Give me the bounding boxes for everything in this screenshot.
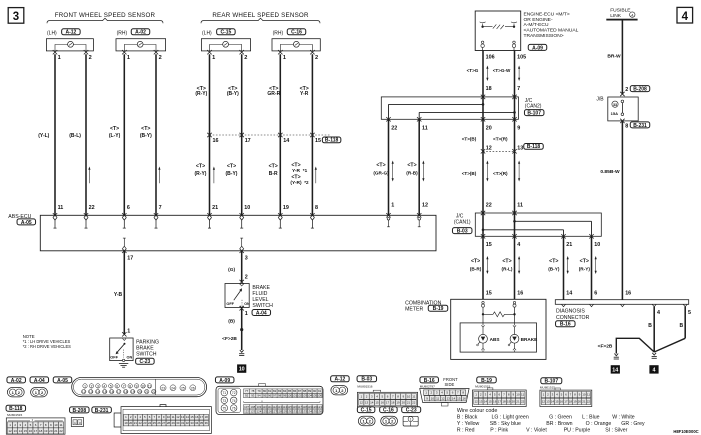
svg-text:21: 21 (145, 390, 149, 394)
svg-text:73: 73 (223, 399, 227, 403)
svg-text:21: 21 (134, 421, 138, 425)
svg-text:106: 106 (317, 394, 322, 398)
svg-text:Y-R: Y-R (292, 168, 301, 174)
svg-text:C-16: C-16 (383, 407, 394, 413)
svg-text:B-107: B-107 (544, 379, 558, 385)
svg-text:*2: *2 (304, 180, 309, 185)
svg-text:MU801515: MU801515 (540, 385, 555, 389)
svg-text:(R-B): (R-B) (406, 171, 418, 176)
svg-text:C-16: C-16 (291, 30, 302, 36)
svg-text:83: 83 (278, 389, 282, 393)
svg-text:SI : Silver: SI : Silver (605, 427, 627, 433)
svg-text:22: 22 (89, 205, 95, 211)
svg-text:<T>(B): <T>(B) (462, 136, 477, 141)
svg-text:A-09: A-09 (219, 378, 230, 384)
svg-text:(L-Y): (L-Y) (109, 133, 121, 139)
svg-text:(Y-R): (Y-R) (290, 180, 302, 186)
svg-text:12: 12 (176, 415, 180, 419)
svg-text:5: 5 (110, 384, 112, 388)
svg-text:107: 107 (244, 405, 249, 409)
svg-text:17: 17 (498, 399, 502, 403)
svg-text:6: 6 (116, 384, 118, 388)
svg-text:<T>: <T> (502, 258, 511, 264)
svg-text:<T>(B): <T>(B) (462, 171, 477, 176)
svg-text:BR-W: BR-W (607, 53, 621, 59)
svg-text:20: 20 (402, 401, 406, 405)
svg-text:BR : Brown: BR : Brown (546, 421, 572, 427)
svg-text:18: 18 (502, 399, 506, 403)
svg-text:15: 15 (315, 138, 321, 144)
svg-text:2: 2 (245, 275, 248, 281)
svg-text:77: 77 (245, 389, 249, 393)
svg-text:<T>: <T> (407, 163, 416, 169)
svg-text:29: 29 (172, 421, 176, 425)
svg-text:<T>(R): <T>(R) (493, 171, 508, 176)
svg-text:MU801515: MU801515 (7, 413, 22, 417)
svg-text:82: 82 (273, 389, 277, 393)
svg-text:8: 8 (315, 205, 318, 211)
svg-text:(B-Y): (B-Y) (227, 91, 239, 97)
svg-text:16: 16 (195, 415, 199, 419)
svg-text:4: 4 (682, 11, 689, 23)
svg-text:17: 17 (117, 390, 121, 394)
svg-text:12: 12 (486, 145, 492, 151)
svg-text:B-19: B-19 (433, 306, 444, 312)
svg-text:108: 108 (250, 405, 255, 409)
svg-text:GR-R: GR-R (267, 91, 280, 97)
svg-text:25: 25 (181, 386, 185, 390)
svg-text:Y-R: Y-R (300, 91, 309, 97)
svg-text:2: 2 (89, 55, 92, 61)
svg-text:17: 17 (564, 400, 568, 404)
svg-text:2: 2 (159, 55, 162, 61)
svg-text:22: 22 (59, 429, 63, 433)
svg-text:13: 13 (479, 399, 483, 403)
svg-text:23: 23 (143, 421, 147, 425)
svg-text:<T>: <T> (269, 164, 278, 170)
svg-text:B: B (679, 323, 683, 329)
svg-text:SIDE: SIDE (445, 382, 455, 387)
svg-text:11: 11 (172, 415, 175, 419)
svg-text:14: 14 (370, 401, 374, 405)
svg-text:99: 99 (283, 394, 287, 398)
svg-text:C-23: C-23 (139, 359, 150, 365)
svg-text:B-208: B-208 (633, 86, 647, 92)
svg-text:G : Green: G : Green (549, 415, 572, 421)
svg-text:9: 9 (517, 125, 520, 131)
svg-text:10: 10 (244, 205, 250, 211)
svg-text:1: 1 (84, 384, 86, 388)
svg-text:15: 15 (555, 400, 559, 404)
svg-text:91: 91 (318, 389, 322, 393)
svg-text:15: 15 (24, 429, 28, 433)
svg-text:19: 19 (507, 399, 511, 403)
svg-text:20: 20 (138, 390, 142, 394)
svg-text:33: 33 (190, 421, 194, 425)
svg-text:1: 1 (127, 55, 130, 61)
svg-text:(CAN1): (CAN1) (454, 219, 471, 225)
svg-text:LG : Light green: LG : Light green (492, 415, 529, 421)
svg-text:20: 20 (512, 399, 516, 403)
svg-text:13: 13 (365, 401, 369, 405)
svg-text:<T>: <T> (471, 258, 480, 264)
svg-text:93: 93 (251, 394, 255, 398)
svg-text:FUSIBLE: FUSIBLE (610, 7, 631, 13)
svg-text:22: 22 (521, 399, 525, 403)
svg-text:18: 18 (205, 415, 209, 419)
svg-text:(CAN2): (CAN2) (525, 104, 542, 110)
svg-text:B-R: B-R (269, 171, 278, 177)
svg-text:<T>: <T> (227, 164, 236, 170)
svg-text:C-23: C-23 (406, 407, 417, 413)
svg-text:76: 76 (232, 407, 236, 411)
svg-text:(R-Y): (R-Y) (195, 171, 207, 177)
svg-text:98: 98 (278, 394, 282, 398)
svg-text:16: 16 (381, 401, 385, 405)
svg-text:4: 4 (517, 242, 520, 248)
svg-text:OFF: OFF (226, 302, 234, 306)
svg-text:10: 10 (407, 394, 411, 398)
svg-text:J/B: J/B (596, 96, 604, 102)
svg-text:A-12: A-12 (334, 377, 345, 383)
svg-text:15: 15 (486, 291, 492, 297)
svg-text:12: 12 (360, 401, 364, 405)
svg-text:10: 10 (582, 393, 586, 397)
svg-text:3: 3 (97, 384, 99, 388)
svg-text:12: 12 (82, 390, 86, 394)
svg-text:21: 21 (582, 400, 586, 404)
svg-text:12: 12 (8, 429, 12, 433)
svg-text:1: 1 (283, 55, 286, 61)
svg-text:REAR WHEEL SPEED SENSOR: REAR WHEEL SPEED SENSOR (212, 12, 309, 19)
svg-text:<T>: <T> (141, 126, 150, 132)
svg-text:16: 16 (110, 390, 114, 394)
svg-text:A-02: A-02 (11, 378, 22, 384)
svg-text:14: 14 (96, 390, 100, 394)
svg-text:20: 20 (578, 400, 582, 404)
svg-text:5: 5 (688, 310, 691, 316)
svg-text:12: 12 (474, 399, 478, 403)
svg-text:13: 13 (13, 429, 17, 433)
svg-text:FRONT WHEEL SPEED SENSOR: FRONT WHEEL SPEED SENSOR (55, 12, 156, 19)
svg-text:109: 109 (257, 405, 262, 409)
svg-text:18: 18 (124, 390, 128, 394)
svg-text:MU802797: MU802797 (420, 384, 435, 388)
svg-text:17: 17 (245, 138, 251, 144)
svg-text:16: 16 (213, 138, 219, 144)
svg-text:H8F10E000C: H8F10E000C (673, 429, 698, 434)
svg-text:16: 16 (462, 396, 466, 400)
svg-text:(R-Y): (R-Y) (579, 267, 591, 272)
svg-text:1: 1 (212, 55, 215, 61)
svg-text:(RH): (RH) (273, 31, 284, 37)
svg-text:B-107: B-107 (527, 110, 541, 116)
svg-text:O : Orange: O : Orange (586, 421, 612, 427)
svg-text:16: 16 (493, 399, 497, 403)
svg-text:20: 20 (486, 125, 492, 131)
svg-text:B-231: B-231 (633, 123, 647, 129)
svg-text:15: 15 (488, 399, 492, 403)
svg-text:26: 26 (191, 386, 195, 390)
svg-text:124: 124 (257, 409, 262, 413)
svg-text:B-118: B-118 (9, 406, 23, 412)
svg-text:1: 1 (245, 311, 248, 317)
svg-text:13: 13 (517, 145, 523, 151)
svg-text:14: 14 (283, 138, 289, 144)
svg-text:22: 22 (587, 400, 591, 404)
svg-text:21: 21 (566, 242, 572, 248)
svg-text:L : Blue: L : Blue (582, 415, 600, 421)
svg-text:80: 80 (263, 389, 267, 393)
svg-text:11: 11 (58, 205, 64, 211)
svg-text:19: 19 (283, 205, 289, 211)
svg-text:(R-L): (R-L) (502, 267, 513, 272)
svg-text:10: 10 (141, 384, 145, 388)
svg-text:21: 21 (516, 399, 520, 403)
svg-text:(B-Y): (B-Y) (226, 171, 238, 177)
svg-text:<T>: <T> (549, 258, 558, 264)
svg-text:81: 81 (268, 389, 272, 393)
svg-text:18: 18 (486, 86, 492, 92)
svg-text:B-03: B-03 (457, 228, 468, 234)
svg-text:22: 22 (412, 401, 416, 405)
svg-text:19: 19 (124, 421, 128, 425)
svg-text:92: 92 (245, 394, 249, 398)
svg-text:123: 123 (250, 409, 255, 413)
svg-text:B-16: B-16 (424, 378, 435, 384)
svg-text:14: 14 (452, 396, 456, 400)
svg-text:15: 15 (457, 396, 461, 400)
svg-text:17: 17 (127, 255, 133, 261)
svg-text:87: 87 (298, 389, 302, 393)
svg-text:136: 136 (317, 409, 322, 413)
svg-text:V : Violet: V : Violet (526, 427, 547, 433)
svg-text:10: 10 (167, 415, 171, 419)
svg-text:22: 22 (139, 421, 143, 425)
svg-text:6: 6 (594, 291, 597, 297)
svg-text:DIAGNOSIS: DIAGNOSIS (556, 309, 585, 315)
svg-text:<T>G-W: <T>G-W (493, 68, 511, 73)
svg-text:A-05: A-05 (21, 220, 32, 226)
svg-text:13: 13 (89, 390, 93, 394)
svg-text:4: 4 (631, 13, 633, 17)
svg-text:22: 22 (152, 390, 156, 394)
svg-text:19: 19 (573, 400, 577, 404)
svg-text:71: 71 (223, 391, 227, 395)
svg-text:(GR-G): (GR-G) (373, 171, 389, 176)
svg-text:16: 16 (560, 400, 564, 404)
svg-text:14: 14 (612, 368, 618, 374)
svg-text:1: 1 (127, 328, 130, 334)
svg-text:18: 18 (391, 401, 395, 405)
svg-text:14: 14 (19, 429, 23, 433)
svg-text:14: 14 (566, 291, 572, 297)
svg-text:90: 90 (313, 389, 317, 393)
svg-text:10: 10 (431, 396, 435, 400)
svg-text:15: 15 (375, 401, 379, 405)
svg-text:OFF: OFF (110, 356, 118, 360)
svg-text:(B-Y): (B-Y) (140, 133, 152, 139)
svg-text:(LH): (LH) (47, 31, 57, 37)
svg-text:11: 11 (436, 396, 439, 400)
svg-text:BRAKE: BRAKE (521, 337, 538, 342)
svg-text:C-15: C-15 (361, 407, 372, 413)
svg-text:15: 15 (103, 390, 107, 394)
svg-text:A-12: A-12 (65, 30, 76, 36)
svg-text:26: 26 (157, 421, 161, 425)
svg-text:*1: *1 (303, 168, 308, 173)
svg-text:13: 13 (546, 400, 550, 404)
svg-text:OR ENGINE-: OR ENGINE- (524, 17, 553, 23)
svg-text:85: 85 (288, 389, 292, 393)
svg-text:<T>: <T> (580, 258, 589, 264)
svg-text:12: 12 (542, 400, 546, 404)
svg-text:<T>(R): <T>(R) (493, 136, 508, 141)
svg-text:1: 1 (58, 55, 61, 61)
svg-text:9: 9 (136, 384, 138, 388)
svg-text:33: 33 (613, 103, 617, 107)
svg-text:10: 10 (54, 423, 58, 427)
svg-text:17: 17 (200, 415, 204, 419)
svg-text:7: 7 (159, 205, 162, 211)
svg-text:2: 2 (315, 55, 318, 61)
svg-text:14: 14 (186, 415, 190, 419)
svg-text:16: 16 (517, 291, 523, 297)
svg-text:20: 20 (49, 429, 53, 433)
svg-text:11: 11 (517, 202, 523, 208)
svg-text:12: 12 (422, 202, 428, 208)
svg-text:105: 105 (517, 54, 526, 60)
svg-text:34: 34 (195, 421, 199, 425)
svg-text:ENGINE-ECU <M/T>: ENGINE-ECU <M/T> (524, 11, 570, 17)
svg-text:W : White: W : White (612, 415, 635, 421)
svg-text:(B): (B) (228, 319, 235, 325)
svg-text:11: 11 (59, 423, 62, 427)
svg-text:A-M/T-ECU: A-M/T-ECU (524, 22, 549, 28)
svg-text:<F>2B: <F>2B (222, 336, 237, 342)
svg-text:72: 72 (232, 391, 236, 395)
svg-text:B-03: B-03 (361, 377, 372, 383)
svg-text:24: 24 (171, 386, 175, 390)
svg-text:(G): (G) (228, 267, 235, 273)
svg-text:28: 28 (167, 421, 171, 425)
svg-text:A-05: A-05 (57, 378, 68, 384)
svg-text:1: 1 (391, 202, 394, 208)
svg-text:<T>: <T> (291, 162, 300, 168)
svg-text:P : Pink: P : Pink (490, 427, 508, 433)
svg-text:75: 75 (223, 407, 227, 411)
svg-text:3: 3 (245, 255, 248, 261)
svg-text:11: 11 (587, 393, 590, 397)
svg-text:10: 10 (594, 242, 600, 248)
svg-text:(B-Y): (B-Y) (548, 267, 560, 272)
svg-text:LINK: LINK (610, 13, 622, 19)
svg-text:11: 11 (412, 394, 415, 398)
svg-text:25: 25 (153, 421, 157, 425)
svg-text:MU801516: MU801516 (357, 385, 372, 389)
svg-text:8: 8 (625, 124, 628, 130)
svg-text:PU : Purple: PU : Purple (564, 427, 591, 433)
svg-text:*2 : RH DRIVE VEHICLES: *2 : RH DRIVE VEHICLES (23, 344, 71, 349)
svg-text:84: 84 (283, 389, 287, 393)
svg-text:8: 8 (129, 384, 131, 388)
svg-text:<F>2B: <F>2B (598, 344, 613, 350)
svg-text:(B-L): (B-L) (69, 133, 81, 139)
svg-text:B-231: B-231 (95, 408, 109, 414)
svg-text:10: 10 (516, 393, 520, 397)
svg-text:<T>: <T> (376, 163, 385, 169)
svg-text:78: 78 (251, 389, 255, 393)
svg-text:4: 4 (653, 368, 656, 374)
svg-text:32: 32 (186, 421, 190, 425)
svg-text:36: 36 (205, 421, 209, 425)
svg-text:SWITCH: SWITCH (136, 351, 157, 357)
svg-text:94: 94 (257, 394, 261, 398)
svg-text:21: 21 (407, 401, 411, 405)
svg-text:B-16: B-16 (560, 322, 571, 328)
svg-text:6: 6 (127, 205, 130, 211)
svg-text:B-208: B-208 (72, 408, 86, 414)
svg-text:88: 88 (303, 389, 307, 393)
svg-text:24: 24 (148, 421, 152, 425)
svg-text:15A: 15A (611, 111, 618, 116)
svg-text:12: 12 (441, 396, 445, 400)
svg-text:17: 17 (34, 429, 38, 433)
svg-text:86: 86 (293, 389, 297, 393)
svg-text:23: 23 (161, 386, 165, 390)
svg-text:97: 97 (273, 394, 277, 398)
svg-text:<T>G: <T>G (467, 68, 479, 73)
svg-text:B-19: B-19 (481, 378, 492, 384)
svg-text:30: 30 (176, 421, 180, 425)
svg-text:A-02: A-02 (135, 30, 146, 36)
svg-text:10: 10 (239, 367, 245, 373)
svg-text:B: B (648, 323, 652, 329)
svg-text:(LH): (LH) (202, 31, 212, 37)
svg-text:14: 14 (484, 399, 488, 403)
svg-text:19: 19 (396, 401, 400, 405)
svg-text:11: 11 (148, 384, 152, 388)
svg-text:SWITCH: SWITCH (252, 303, 273, 309)
svg-text:Y : Yellow: Y : Yellow (457, 421, 480, 427)
svg-text:B : Black: B : Black (457, 415, 478, 421)
svg-text:4: 4 (103, 384, 105, 388)
svg-text:METER: METER (405, 306, 423, 312)
svg-text:Y-B: Y-B (114, 292, 123, 298)
svg-text:(B-R): (B-R) (470, 267, 482, 272)
svg-text:21: 21 (54, 429, 58, 433)
svg-text:79: 79 (257, 389, 261, 393)
svg-text:ABS: ABS (490, 337, 500, 342)
svg-text:2: 2 (244, 55, 247, 61)
svg-text:(RH): (RH) (117, 31, 128, 37)
svg-text:15: 15 (190, 415, 194, 419)
svg-text:ON: ON (244, 302, 250, 306)
svg-text:11: 11 (422, 125, 428, 131)
svg-text:7: 7 (517, 86, 520, 92)
svg-text:95: 95 (263, 394, 267, 398)
svg-text:A-04: A-04 (256, 310, 267, 316)
svg-text:0.85B-W: 0.85B-W (600, 169, 620, 175)
svg-text:19: 19 (44, 429, 48, 433)
svg-text:21: 21 (212, 205, 218, 211)
svg-text:22: 22 (391, 125, 397, 131)
svg-text:15: 15 (486, 242, 492, 248)
svg-text:19: 19 (131, 390, 135, 394)
svg-text:13: 13 (447, 396, 451, 400)
svg-text:122: 122 (244, 409, 249, 413)
svg-text:<T>: <T> (291, 174, 300, 180)
